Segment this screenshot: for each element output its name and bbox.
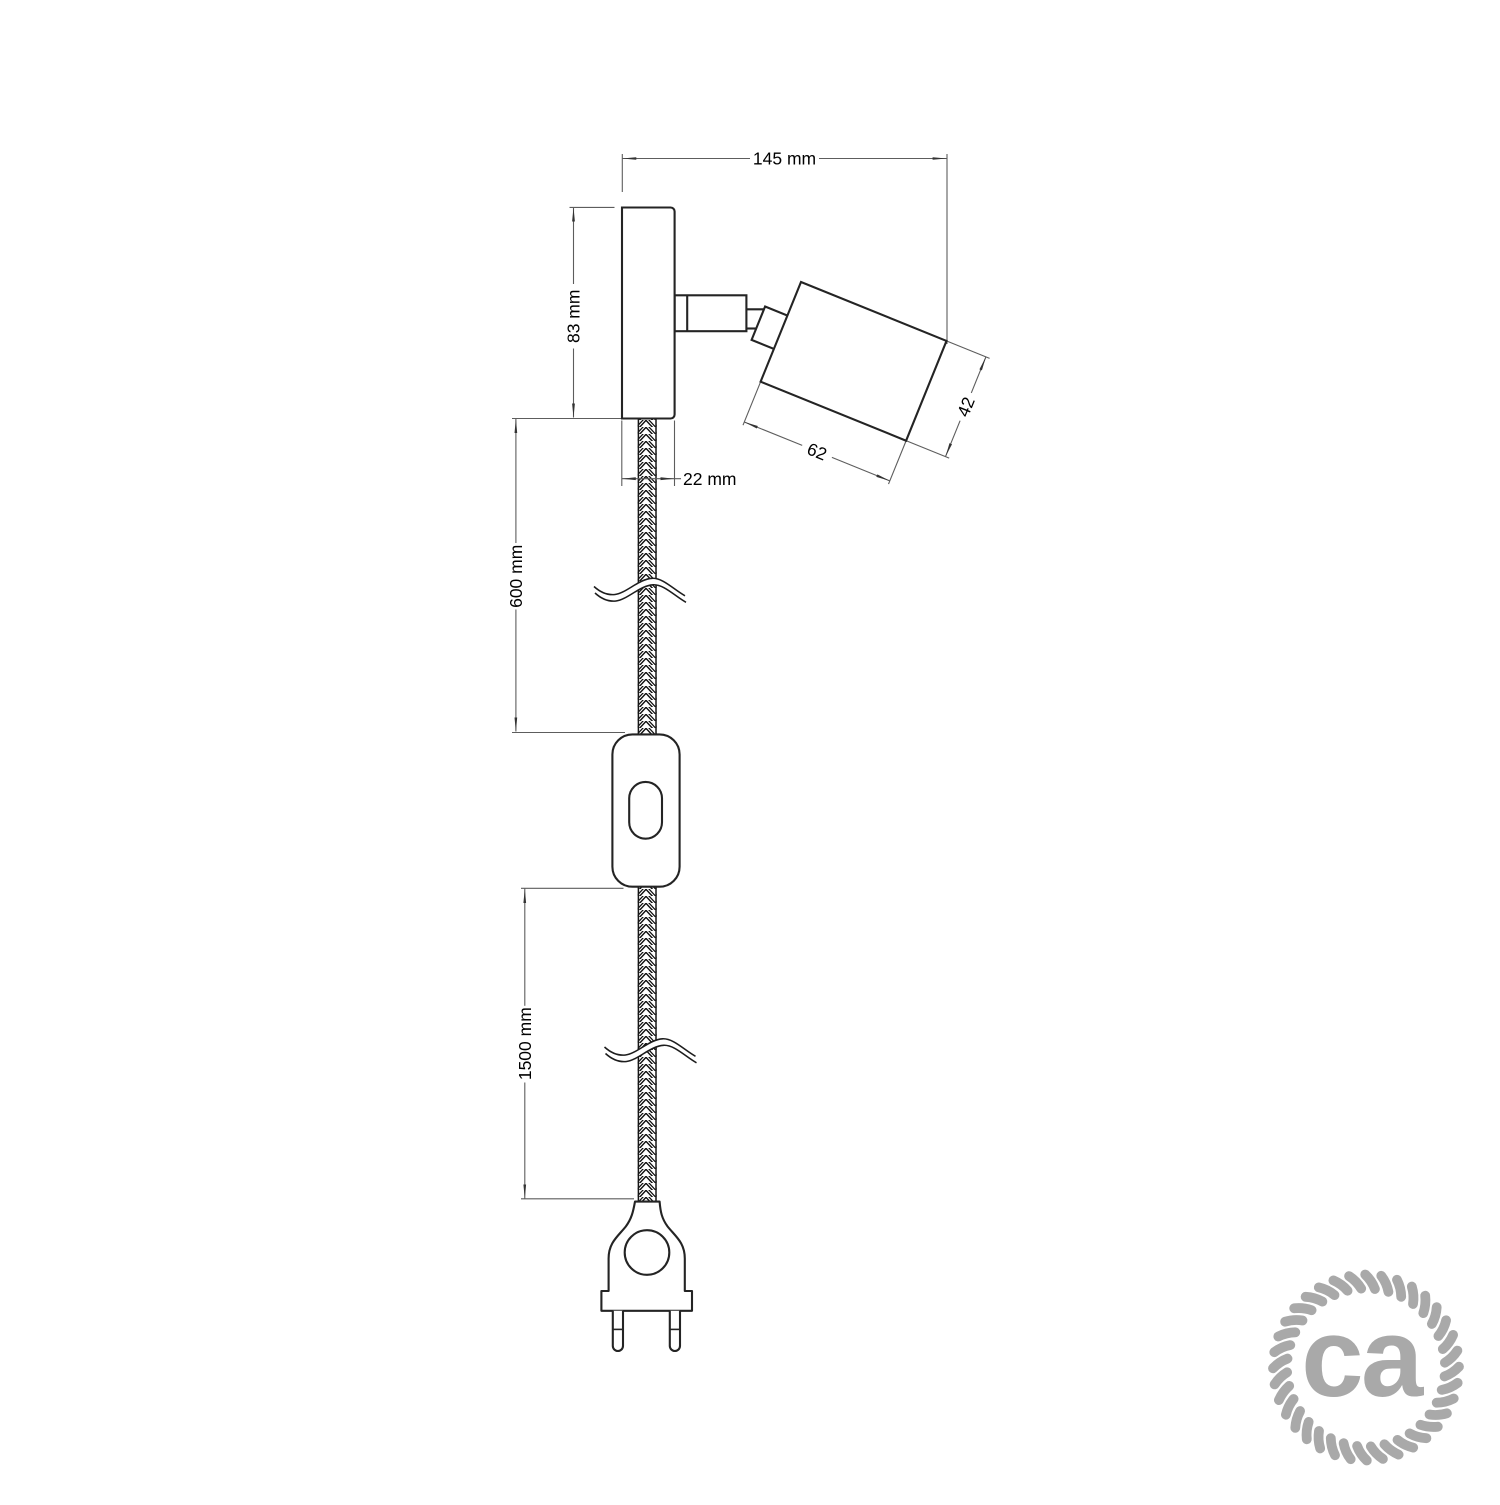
svg-text:600 mm: 600 mm (506, 545, 526, 608)
svg-text:83 mm: 83 mm (564, 290, 584, 343)
svg-text:ca: ca (1301, 1295, 1424, 1420)
svg-text:1500 mm: 1500 mm (515, 1007, 535, 1080)
svg-text:145 mm: 145 mm (753, 149, 816, 169)
svg-text:22 mm: 22 mm (683, 469, 736, 489)
